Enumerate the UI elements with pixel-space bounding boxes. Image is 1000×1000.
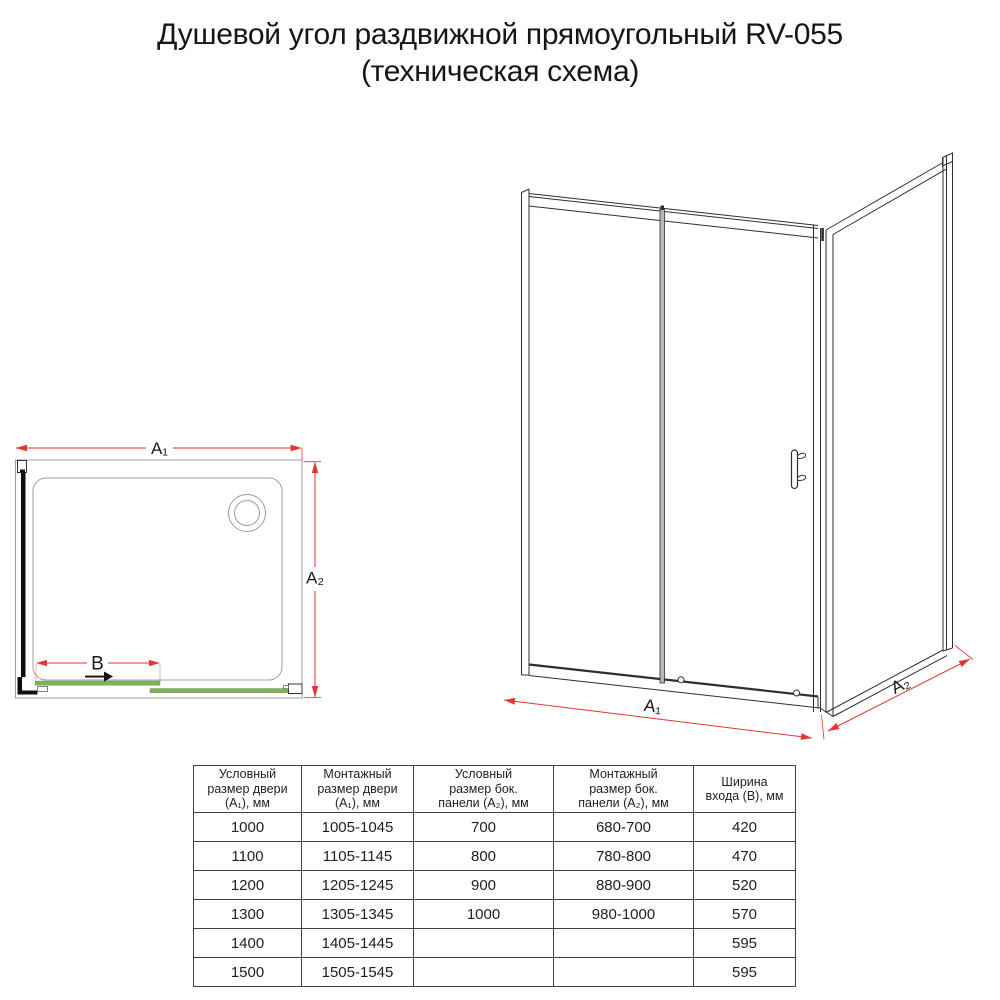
dim-label-b: B [91, 654, 104, 675]
page-title-line2: (техническая схема) [0, 53, 1000, 90]
size-table-header-row: Условный размер двери (A₁), мм Монтажный… [194, 766, 796, 813]
cell: 1505-1545 [302, 958, 414, 987]
technical-scheme-page: Душевой угол раздвижной прямоугольный RV… [0, 0, 1000, 1000]
cell: 1405-1445 [302, 929, 414, 958]
dimension-a1-front: A₁ [504, 695, 824, 740]
size-table: Условный размер двери (A₁), мм Монтажный… [193, 765, 796, 987]
cell: 700 [414, 813, 554, 842]
cell: 595 [694, 958, 796, 987]
wall-profile-right [289, 684, 303, 694]
table-row: 1000 1005-1045 700 680-700 420 [194, 813, 796, 842]
dim-label-a2: A₂ [306, 569, 324, 588]
cell [414, 958, 554, 987]
door-frame [522, 189, 834, 717]
cell: 680-700 [554, 813, 694, 842]
table-row: 1500 1505-1545 595 [194, 958, 796, 987]
drain-circle-inner [235, 501, 260, 526]
bottom-roller-right [794, 690, 800, 696]
cell: 880-900 [554, 871, 694, 900]
cell: 520 [694, 871, 796, 900]
dimension-a2: A₂ [304, 462, 324, 698]
cell: 470 [694, 842, 796, 871]
cell: 1000 [194, 813, 302, 842]
dim-label-a1: A₁ [151, 439, 168, 458]
cell: 595 [694, 929, 796, 958]
shower-tray-outline [16, 460, 303, 698]
table-row: 1100 1105-1145 800 780-800 470 [194, 842, 796, 871]
door-handle [792, 450, 806, 489]
cell: 1400 [194, 929, 302, 958]
dimension-b: B [36, 654, 160, 683]
header-panel-mounting: Монтажный размер бок. панели (A₂), мм [554, 766, 694, 813]
table-row: 1300 1305-1345 1000 980-1000 570 [194, 900, 796, 929]
table-row: 1200 1205-1245 900 880-900 520 [194, 871, 796, 900]
cell [414, 929, 554, 958]
header-door-mounting: Монтажный размер двери (A₁), мм [302, 766, 414, 813]
cell: 780-800 [554, 842, 694, 871]
fixed-panel-glass [150, 689, 288, 693]
table-row: 1400 1405-1445 595 [194, 929, 796, 958]
sliding-door-panels-plan [35, 681, 302, 694]
header-panel-nominal: Условный размер бок. панели (A₂), мм [414, 766, 554, 813]
cell: 1500 [194, 958, 302, 987]
cell: 570 [694, 900, 796, 929]
dim-label-a1-front: A₁ [643, 695, 663, 717]
cell [554, 929, 694, 958]
cell: 1100 [194, 842, 302, 871]
cell [554, 958, 694, 987]
cell: 1200 [194, 871, 302, 900]
door-divider [660, 206, 800, 697]
page-title-line1: Душевой угол раздвижной прямоугольный RV… [0, 16, 1000, 53]
page-title: Душевой угол раздвижной прямоугольный RV… [0, 16, 1000, 90]
side-panel-perspective [826, 153, 953, 717]
dimension-a2-front: A₂ [828, 646, 973, 732]
header-entry-width: Ширина входа (B), мм [694, 766, 796, 813]
cell: 800 [414, 842, 554, 871]
top-view-diagram: A₁ A₂ B [0, 418, 340, 718]
cell: 900 [414, 871, 554, 900]
cell: 420 [694, 813, 796, 842]
front-view-diagram: A₁ A₂ [480, 148, 995, 748]
cell: 1305-1345 [302, 900, 414, 929]
cell: 980-1000 [554, 900, 694, 929]
header-door-nominal: Условный размер двери (A₁), мм [194, 766, 302, 813]
cell: 1000 [414, 900, 554, 929]
sliding-panel-glass [35, 681, 160, 685]
cell: 1205-1245 [302, 871, 414, 900]
dimension-a1: A₁ [16, 439, 303, 460]
cell: 1300 [194, 900, 302, 929]
cell: 1105-1145 [302, 842, 414, 871]
cell: 1005-1045 [302, 813, 414, 842]
bottom-roller-left [678, 677, 684, 683]
